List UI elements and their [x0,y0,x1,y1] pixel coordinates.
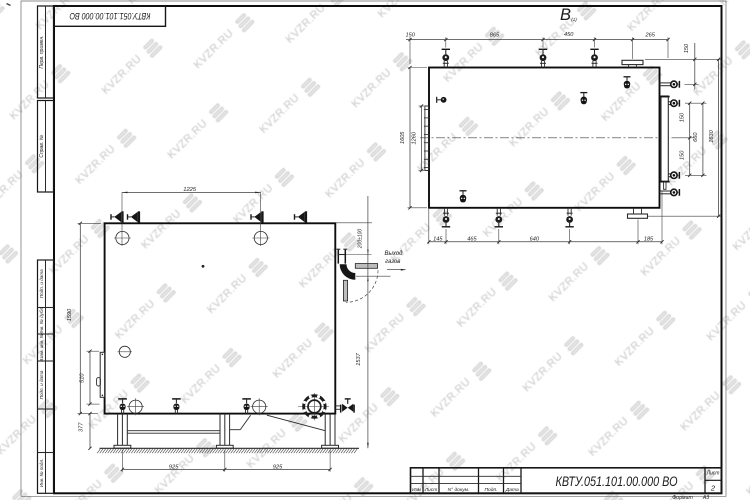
svg-text:185: 185 [644,237,654,243]
svg-text:N° докум.: N° докум. [448,487,470,493]
svg-text:Формат: Формат [672,495,693,500]
svg-text:1590: 1590 [67,308,73,321]
svg-text:925: 925 [169,465,179,471]
svg-text:2: 2 [710,484,716,493]
svg-text:Инв. № подл.: Инв. № подл. [39,459,44,488]
svg-text:150: 150 [680,150,686,160]
svg-text:Изм: Изм [412,487,422,493]
svg-text:Подп.: Подп. [484,487,497,493]
svg-text:Справ. №: Справ. № [39,134,45,157]
svg-text:640: 640 [530,237,540,243]
svg-text:145: 145 [433,237,443,243]
svg-text:1537: 1537 [356,352,362,365]
svg-text:150: 150 [684,43,690,53]
svg-text:Выход: Выход [384,251,403,257]
svg-text:377: 377 [78,422,84,432]
svg-text:В: В [560,6,571,24]
svg-text:465: 465 [467,237,477,243]
svg-text:1630: 1630 [709,129,715,142]
svg-text:Перв. примен.: Перв. примен. [39,35,45,68]
svg-text:Взам. инв. №: Взам. инв. № [39,333,44,361]
svg-text:Подп. и дата: Подп. и дата [39,370,44,399]
svg-text:КВТУ.051.101.00.000 ВО: КВТУ.051.101.00.000 ВО [70,11,151,21]
svg-text:А3: А3 [702,495,709,500]
svg-text:200±100: 200±100 [358,229,364,250]
svg-text:газов: газов [385,259,400,265]
svg-text:Дата: Дата [505,487,519,493]
svg-text:510: 510 [79,373,85,383]
svg-text:660: 660 [693,132,699,142]
svg-text:925: 925 [273,465,283,471]
svg-text:Лист: Лист [706,471,720,477]
svg-text:1605: 1605 [400,131,406,144]
svg-text:Инв. № дубл.: Инв. № дубл. [39,307,44,335]
svg-text:1225: 1225 [183,187,197,193]
svg-text:865: 865 [490,33,500,39]
svg-text:450: 450 [564,32,574,38]
svg-text:265: 265 [645,33,656,39]
svg-text:150: 150 [680,112,686,122]
svg-text:1260: 1260 [412,131,418,144]
svg-text:150: 150 [406,33,416,39]
svg-text:Лист: Лист [424,487,438,493]
svg-text:КВТУ.051.101.00.000 ВО: КВТУ.051.101.00.000 ВО [556,474,678,489]
svg-text:(1): (1) [571,17,577,22]
svg-text:Подп. и дата: Подп. и дата [39,269,44,298]
